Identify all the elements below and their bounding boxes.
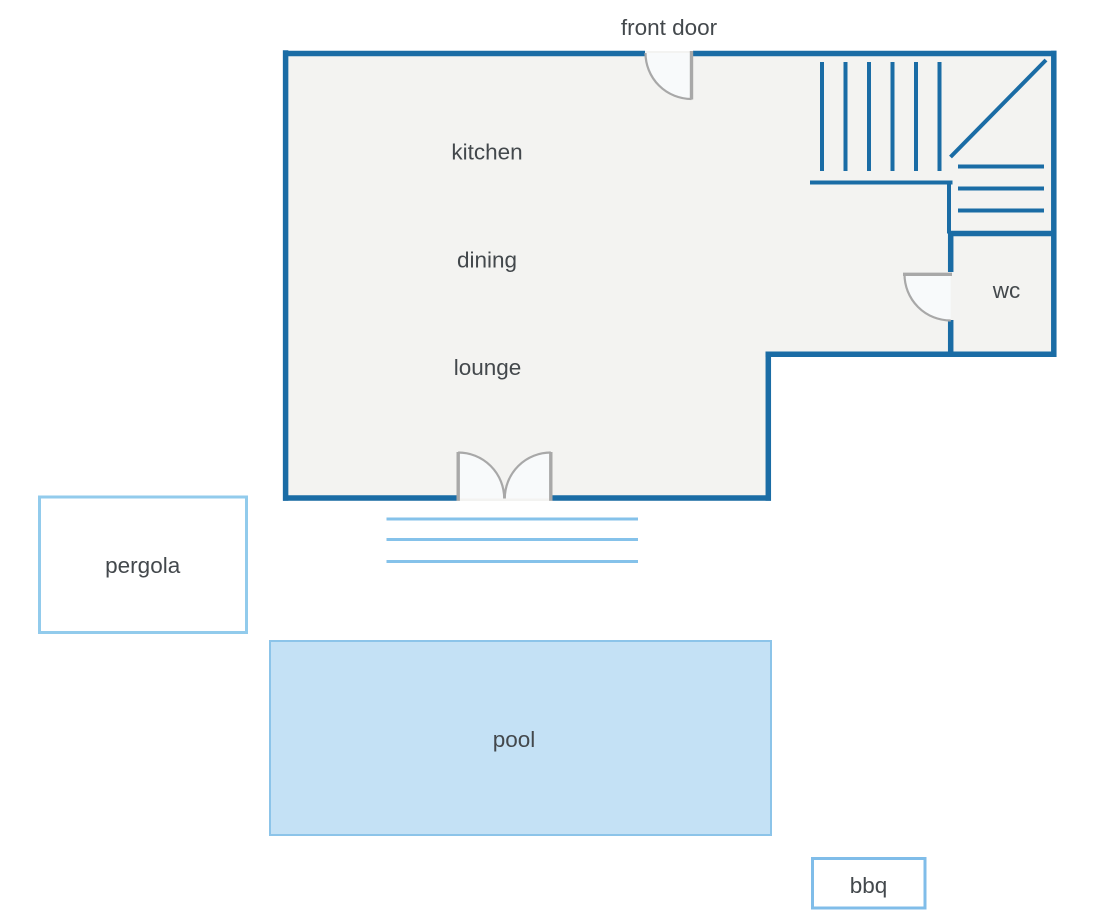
svg-text:lounge: lounge <box>454 355 522 380</box>
svg-text:pool: pool <box>493 727 536 752</box>
svg-text:pergola: pergola <box>105 553 181 578</box>
svg-text:bbq: bbq <box>850 873 888 898</box>
svg-text:kitchen: kitchen <box>451 140 522 165</box>
svg-text:wc: wc <box>992 278 1021 303</box>
svg-text:front door: front door <box>621 15 718 40</box>
svg-text:dining: dining <box>457 248 517 273</box>
